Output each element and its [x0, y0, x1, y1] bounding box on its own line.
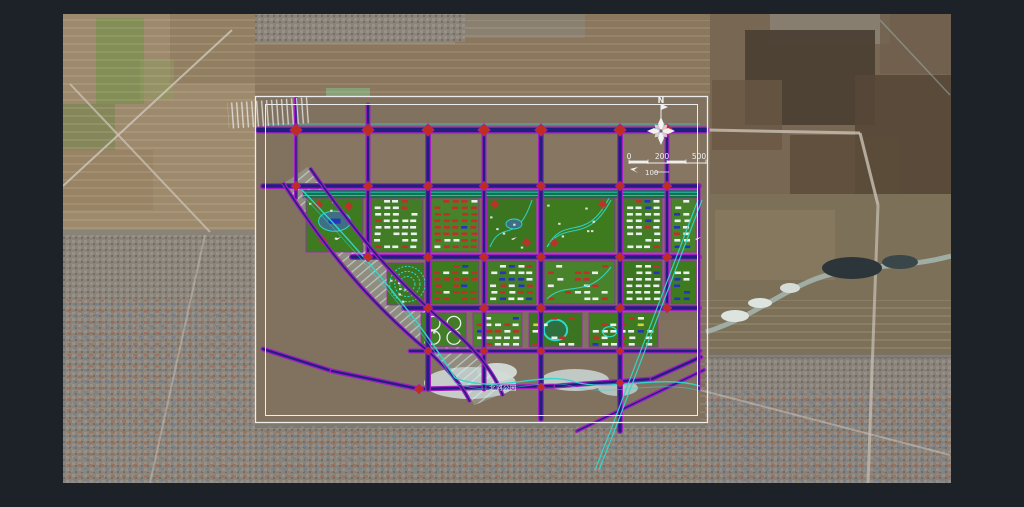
small-building	[399, 293, 401, 295]
building	[644, 298, 650, 301]
building	[654, 272, 660, 275]
building	[462, 246, 468, 249]
building	[392, 246, 398, 249]
building	[486, 330, 492, 333]
building	[683, 272, 689, 275]
building	[471, 213, 477, 216]
building	[471, 233, 477, 236]
building	[392, 200, 398, 203]
building	[602, 291, 608, 294]
building	[462, 278, 468, 281]
building	[575, 278, 581, 281]
city-block	[544, 261, 615, 304]
building	[486, 337, 492, 340]
building	[393, 233, 399, 236]
building	[443, 233, 449, 236]
building	[411, 239, 417, 242]
satellite-patch	[715, 210, 835, 280]
small-building	[562, 235, 564, 237]
building	[453, 291, 459, 294]
building	[653, 285, 659, 288]
scale-segment	[629, 161, 648, 163]
building	[434, 246, 440, 249]
building	[495, 330, 501, 333]
building	[384, 226, 390, 229]
building	[435, 226, 441, 229]
building	[602, 343, 608, 346]
building	[636, 226, 642, 229]
small-building	[330, 210, 332, 212]
building	[568, 343, 574, 346]
building	[384, 213, 390, 216]
building	[654, 278, 660, 281]
building	[470, 226, 476, 229]
scale-segment	[667, 161, 686, 163]
building	[636, 298, 642, 301]
building	[499, 291, 505, 294]
building	[638, 330, 644, 333]
building	[635, 207, 641, 210]
building	[565, 291, 571, 294]
building	[435, 291, 441, 294]
building	[490, 285, 496, 288]
small-building	[433, 332, 435, 334]
building	[375, 233, 381, 236]
building	[627, 213, 633, 216]
building	[443, 272, 449, 275]
building	[626, 285, 632, 288]
building	[675, 220, 681, 223]
building	[434, 298, 440, 301]
building	[575, 272, 581, 275]
building	[500, 298, 506, 301]
building	[471, 278, 477, 281]
building	[527, 285, 533, 288]
city-block	[623, 196, 662, 252]
building	[513, 343, 519, 346]
building	[683, 278, 689, 281]
building	[644, 291, 650, 294]
building	[435, 285, 441, 288]
building	[556, 265, 562, 268]
small-building	[587, 230, 589, 232]
building	[584, 291, 590, 294]
building	[654, 207, 660, 210]
building	[592, 298, 598, 301]
building	[402, 226, 408, 229]
building	[644, 200, 650, 203]
building	[569, 317, 575, 320]
building	[645, 239, 651, 242]
building	[527, 291, 533, 294]
small-building	[558, 223, 560, 225]
scalebar-sub-label: 100	[645, 169, 658, 177]
building	[575, 291, 581, 294]
building	[584, 298, 590, 301]
town-roof-texture	[260, 425, 700, 480]
building	[509, 265, 515, 268]
green-belt	[303, 190, 699, 198]
city-block	[544, 194, 615, 252]
building	[593, 337, 599, 340]
building	[461, 226, 467, 229]
building	[452, 207, 458, 210]
building	[452, 226, 458, 229]
building	[462, 239, 468, 242]
city-block	[473, 313, 522, 347]
building	[674, 239, 680, 242]
building	[636, 272, 642, 275]
satellite-patch	[300, 135, 700, 185]
plan-road	[419, 386, 556, 389]
building	[627, 207, 633, 210]
building	[638, 317, 644, 320]
small-building	[521, 247, 523, 249]
building	[384, 200, 390, 203]
building	[402, 239, 408, 242]
building	[490, 298, 496, 301]
building	[645, 265, 651, 268]
building	[499, 278, 505, 281]
building	[548, 272, 554, 275]
building	[518, 272, 524, 275]
small-building	[547, 205, 549, 207]
building	[683, 213, 689, 216]
building	[453, 200, 459, 203]
building	[602, 298, 608, 301]
building	[518, 278, 524, 281]
building	[559, 343, 565, 346]
building	[461, 233, 467, 236]
city-block	[529, 313, 582, 347]
building	[410, 226, 416, 229]
building	[435, 239, 441, 242]
small-building	[503, 233, 505, 235]
building	[636, 200, 642, 203]
building	[452, 233, 458, 236]
building	[444, 278, 450, 281]
building	[602, 324, 608, 327]
building	[526, 265, 532, 268]
building	[471, 207, 477, 210]
building	[610, 330, 616, 333]
building	[675, 272, 681, 275]
building	[674, 213, 680, 216]
building	[548, 285, 554, 288]
building	[500, 272, 506, 275]
building	[375, 220, 381, 223]
river-ice-patch	[748, 298, 772, 308]
building	[593, 330, 599, 333]
building	[629, 317, 635, 320]
building	[384, 207, 390, 210]
building	[461, 291, 467, 294]
block-base	[431, 196, 479, 252]
building	[471, 239, 477, 242]
building	[471, 298, 477, 301]
river-ice-patch	[822, 257, 882, 279]
building	[384, 246, 390, 249]
building	[526, 272, 532, 275]
small-building	[496, 228, 498, 230]
scalebar-label-0: 0	[627, 152, 632, 161]
building	[375, 213, 381, 216]
building	[462, 265, 468, 268]
building	[513, 330, 519, 333]
small-building	[390, 280, 392, 282]
satellite-patch	[712, 80, 782, 150]
building	[683, 200, 689, 203]
building	[444, 246, 450, 249]
block-base	[671, 196, 696, 252]
building	[645, 220, 651, 223]
building	[551, 337, 557, 340]
small-building	[585, 208, 587, 210]
building	[443, 200, 449, 203]
building	[627, 233, 633, 236]
city-block	[371, 196, 423, 252]
building	[503, 343, 509, 346]
building	[610, 324, 616, 327]
building	[443, 298, 449, 301]
building	[518, 298, 524, 301]
building	[435, 233, 441, 236]
building	[653, 246, 659, 249]
city-block	[671, 196, 696, 252]
building	[453, 285, 459, 288]
building	[500, 265, 506, 268]
building	[402, 220, 408, 223]
building	[453, 278, 459, 281]
building	[411, 233, 417, 236]
building	[471, 220, 477, 223]
building	[644, 246, 650, 249]
building	[654, 220, 660, 223]
building	[444, 291, 450, 294]
city-block	[431, 261, 479, 304]
small-building	[513, 224, 515, 226]
building	[471, 272, 477, 275]
building	[462, 272, 468, 275]
building	[495, 337, 501, 340]
building	[509, 278, 515, 281]
building	[518, 265, 524, 268]
building	[452, 272, 458, 275]
river-park-label: 北河公园	[489, 384, 517, 392]
building	[645, 207, 651, 210]
city-block	[671, 261, 696, 304]
building	[653, 200, 659, 203]
building	[654, 213, 660, 216]
building	[461, 285, 467, 288]
building	[548, 298, 554, 301]
building	[393, 226, 399, 229]
building	[627, 278, 633, 281]
building	[602, 337, 608, 340]
building	[629, 343, 635, 346]
city-block	[623, 261, 662, 304]
small-building	[490, 216, 492, 218]
building	[654, 233, 660, 236]
building	[375, 207, 381, 210]
building	[410, 220, 416, 223]
building	[654, 239, 660, 242]
building	[435, 213, 441, 216]
building	[626, 298, 632, 301]
building	[645, 278, 651, 281]
building	[559, 337, 565, 340]
building	[491, 291, 497, 294]
urban-texture	[255, 14, 465, 42]
building	[532, 343, 538, 346]
building	[636, 246, 642, 249]
building	[462, 298, 468, 301]
building	[453, 246, 459, 249]
building	[486, 343, 492, 346]
building	[627, 291, 633, 294]
building	[375, 226, 381, 229]
building	[583, 278, 589, 281]
town-roof-texture	[63, 300, 255, 483]
small-building	[591, 230, 593, 232]
building	[517, 291, 523, 294]
building	[410, 246, 416, 249]
satellite-patch	[880, 14, 951, 74]
field-rows-texture	[63, 14, 255, 230]
building	[504, 330, 510, 333]
building	[636, 213, 642, 216]
building	[402, 246, 408, 249]
building	[636, 233, 642, 236]
building	[393, 207, 399, 210]
river-ice-patch	[721, 310, 749, 322]
building	[684, 298, 690, 301]
building	[434, 272, 440, 275]
building	[444, 213, 450, 216]
building	[461, 200, 467, 203]
building	[526, 278, 532, 281]
building	[513, 317, 519, 320]
building	[384, 220, 390, 223]
building	[654, 291, 660, 294]
building	[509, 291, 515, 294]
building	[462, 207, 468, 210]
building	[462, 220, 468, 223]
building	[375, 246, 381, 249]
building	[611, 343, 617, 346]
building	[592, 285, 598, 288]
viewer-stage: N 0 200 500 100 北河公园	[0, 0, 1024, 507]
town-roof-texture	[705, 390, 951, 483]
block-base	[371, 196, 423, 252]
building	[434, 207, 440, 210]
city-block	[487, 196, 536, 252]
small-building	[593, 221, 595, 223]
building	[402, 207, 408, 210]
building	[627, 220, 633, 223]
building	[509, 285, 515, 288]
river-ice-patch	[882, 255, 918, 269]
city-block	[487, 261, 536, 304]
building	[645, 272, 651, 275]
building	[684, 291, 690, 294]
building	[495, 343, 501, 346]
building	[654, 298, 660, 301]
belt-base	[303, 190, 699, 198]
building	[636, 278, 642, 281]
block-base	[623, 196, 662, 252]
building	[638, 324, 644, 327]
building	[627, 246, 633, 249]
building	[584, 272, 590, 275]
building	[411, 213, 417, 216]
building	[393, 213, 399, 216]
building	[551, 317, 557, 320]
building	[434, 278, 440, 281]
building	[645, 226, 651, 229]
building	[674, 285, 680, 288]
building	[402, 200, 408, 203]
building	[636, 220, 642, 223]
building	[495, 324, 501, 327]
building	[533, 330, 539, 333]
building	[462, 213, 468, 216]
building	[602, 265, 608, 268]
building	[508, 298, 514, 301]
building	[444, 220, 450, 223]
north-label: N	[658, 96, 665, 105]
building	[592, 343, 598, 346]
building	[491, 272, 497, 275]
building	[513, 324, 519, 327]
building	[434, 220, 440, 223]
building	[444, 239, 450, 242]
building	[509, 272, 515, 275]
building	[470, 291, 476, 294]
city-block	[431, 196, 479, 252]
building	[675, 207, 681, 210]
building	[500, 285, 506, 288]
scalebar-label-500: 500	[692, 152, 707, 161]
building	[471, 246, 477, 249]
building	[453, 265, 459, 268]
building	[653, 265, 659, 268]
building	[636, 285, 642, 288]
building	[513, 337, 519, 340]
building	[674, 226, 680, 229]
building	[628, 330, 634, 333]
building	[674, 278, 680, 281]
satellite-plan-map: N 0 200 500 100 北河公园	[63, 14, 951, 483]
river-ice-patch	[780, 283, 800, 293]
building	[402, 233, 408, 236]
small-building	[399, 288, 401, 290]
building	[392, 220, 398, 223]
building	[674, 298, 680, 301]
building	[645, 213, 651, 216]
building	[471, 200, 477, 203]
building	[374, 239, 380, 242]
building	[452, 220, 458, 223]
scalebar-label-200: 200	[655, 152, 670, 161]
building	[636, 265, 642, 268]
building	[635, 291, 641, 294]
building	[453, 239, 459, 242]
building	[518, 285, 524, 288]
building	[644, 285, 650, 288]
building	[653, 226, 659, 229]
building	[629, 337, 635, 340]
